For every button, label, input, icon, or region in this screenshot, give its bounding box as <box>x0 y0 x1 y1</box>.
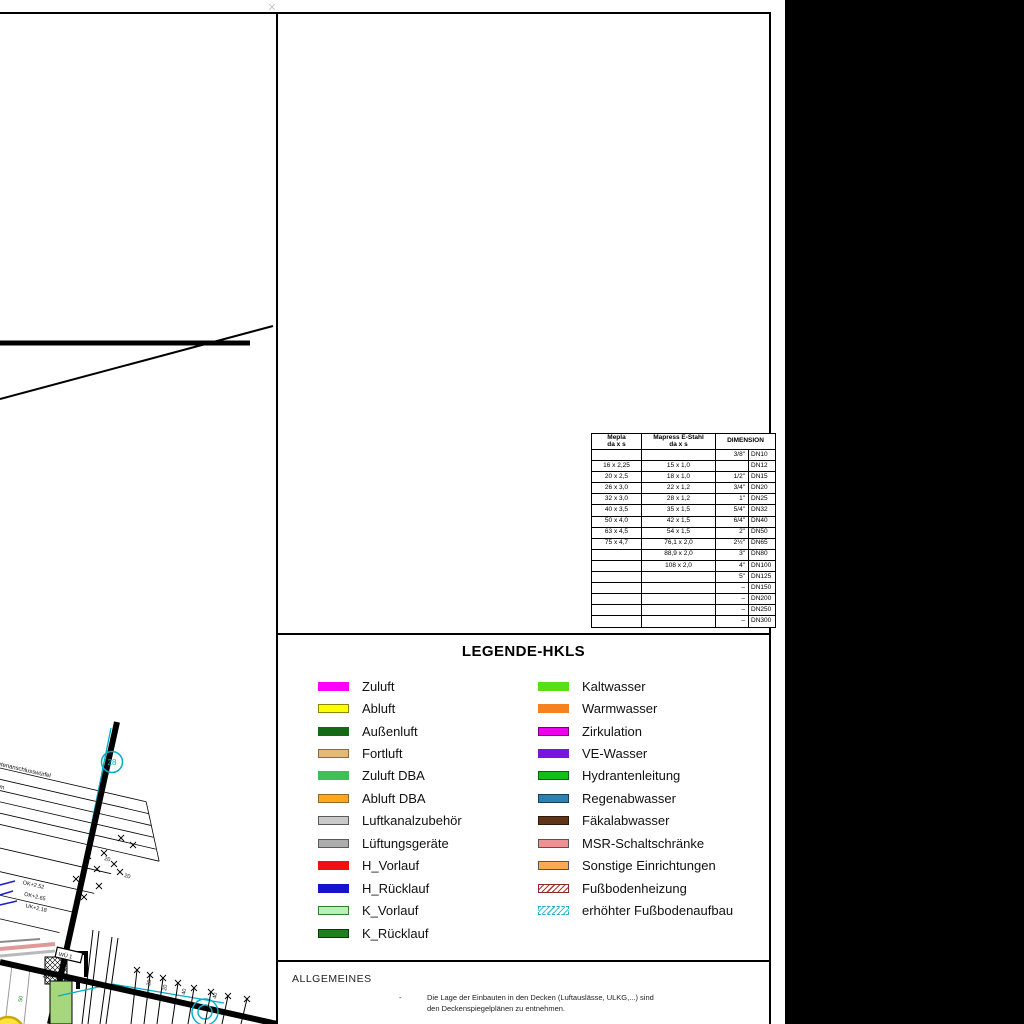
legend-panel-bottom-border <box>276 960 771 962</box>
pipe-table-header: Mepla da x s Mapress E-Stahl da x s DIME… <box>592 434 776 450</box>
cad-faint-tick <box>269 4 275 10</box>
cad-level-text: OK+2.52 <box>22 880 45 891</box>
legend-swatch <box>318 771 349 780</box>
legend-swatch <box>538 794 569 803</box>
legend-swatch <box>538 704 569 713</box>
table-cell: DN20 <box>749 483 776 494</box>
table-cell: DN50 <box>749 527 776 538</box>
legend-item: K_Vorlauf <box>318 899 462 921</box>
legend-swatch <box>538 816 569 825</box>
table-cell: – <box>716 594 749 605</box>
pipe-table-body: 3/8"DN1016 x 2,2515 x 1,0DN1220 x 2,518 … <box>592 450 776 628</box>
cad-msr-line <box>0 944 55 949</box>
legend-item: H_Vorlauf <box>318 855 462 877</box>
table-row: –DN150 <box>592 583 776 594</box>
cad-line <box>131 970 137 1024</box>
legend-column-right: KaltwasserWarmwasserZirkulationVE-Wasser… <box>538 675 733 922</box>
legend-label: MSR-Schaltschränke <box>582 836 704 851</box>
header-mapress-line2: da x s <box>669 441 687 448</box>
legend-swatch <box>318 839 349 848</box>
cad-dim-text: 40 <box>181 988 188 995</box>
legend-label: Zuluft <box>362 679 395 694</box>
table-cell: 54 x 1,5 <box>642 527 716 538</box>
table-cell: DN15 <box>749 472 776 483</box>
table-cell: DN300 <box>749 616 776 627</box>
table-cell <box>592 450 642 461</box>
table-row: 40 x 3,535 x 1,55/4"DN32 <box>592 505 776 516</box>
table-row: 20 x 2,518 x 1,01/2"DN15 <box>592 472 776 483</box>
table-cell: 3/4" <box>716 483 749 494</box>
legend-item: K_Rücklauf <box>318 922 462 944</box>
table-cell <box>642 572 716 583</box>
legend-label: K_Rücklauf <box>362 926 428 941</box>
legend-swatch <box>318 682 349 691</box>
table-cell: DN250 <box>749 605 776 616</box>
table-cell: 5/4" <box>716 505 749 516</box>
cad-section-marker-label: 28 <box>108 758 117 767</box>
legend-swatch <box>538 727 569 736</box>
legend-swatch <box>538 749 569 758</box>
cad-gray-walls <box>5 965 30 1024</box>
legend-item: Lüftungsgeräte <box>318 832 462 854</box>
table-cell: 2½" <box>716 538 749 549</box>
legend-item: VE-Wasser <box>538 742 733 764</box>
legend-swatch <box>318 749 349 758</box>
allgemeines-bullet: - <box>399 993 402 1002</box>
cad-green-shaft <box>50 981 72 1024</box>
table-cell: DN80 <box>749 549 776 560</box>
legend-swatch <box>538 861 569 870</box>
legend-swatch <box>318 704 349 713</box>
legend-swatch <box>318 727 349 736</box>
legend-swatch <box>318 794 349 803</box>
legend-item: Zuluft <box>318 675 462 697</box>
table-cell <box>642 594 716 605</box>
cad-diagonal-line <box>0 326 273 399</box>
legend-item: Luftkanalzubehör <box>318 810 462 832</box>
table-cell: 6/4" <box>716 516 749 527</box>
legend-swatch <box>318 929 349 938</box>
cad-annotation-text: B=1600 mm H=600 mm <box>0 771 5 791</box>
allgemeines-note-line: den Deckenspiegelplänen zu entnehmen. <box>427 1003 757 1014</box>
cad-blue-annotations <box>0 881 17 905</box>
table-cell: 4" <box>716 560 749 571</box>
legend-swatch <box>318 816 349 825</box>
pipe-dimension-table: Mepla da x s Mapress E-Stahl da x s DIME… <box>591 433 776 628</box>
legend-label: H_Vorlauf <box>362 858 419 873</box>
legend-panel-top-border <box>276 633 771 635</box>
table-row: 3/8"DN10 <box>592 450 776 461</box>
allgemeines-note-line: Die Lage der Einbauten in den Decken (Lu… <box>427 992 757 1003</box>
legend-label: Warmwasser <box>582 701 657 716</box>
table-row: 32 x 3,028 x 1,21"DN25 <box>592 494 776 505</box>
table-row: –DN200 <box>592 594 776 605</box>
table-row: 5"DN125 <box>592 572 776 583</box>
table-cell <box>716 461 749 472</box>
cad-level-text: UK+2.18 <box>25 903 47 914</box>
cad-dim-text: 20 <box>162 984 169 991</box>
cad-drawing: N-16+HYGIENE-Mietenanschlusswürfel Type … <box>0 0 277 1024</box>
legend-label: Abluft <box>362 701 395 716</box>
header-mepla: Mepla da x s <box>592 434 642 450</box>
legend-item: erhöhter Fußbodenaufbau <box>538 899 733 921</box>
legend-item: Zirkulation <box>538 720 733 742</box>
legend-label: Zuluft DBA <box>362 768 425 783</box>
cad-gray-line <box>0 951 55 956</box>
legend-column-left: ZuluftAbluftAußenluftFortluftZuluft DBAA… <box>318 675 462 944</box>
legend-label: Luftkanalzubehör <box>362 813 462 828</box>
legend-label: Fäkalabwasser <box>582 813 669 828</box>
table-cell: 42 x 1,5 <box>642 516 716 527</box>
table-cell: 18 x 1,0 <box>642 472 716 483</box>
table-row: 50 x 4,042 x 1,56/4"DN40 <box>592 516 776 527</box>
cad-thin-walls <box>82 930 118 1024</box>
sheet-black-margin <box>785 0 1024 1024</box>
legend-swatch <box>318 884 349 893</box>
table-row: –DN300 <box>592 616 776 627</box>
legend-swatch <box>538 884 569 893</box>
legend-label: Abluft DBA <box>362 791 426 806</box>
table-cell: 76,1 x 2,0 <box>642 538 716 549</box>
table-cell: 50 x 4,0 <box>592 516 642 527</box>
legend-item: Warmwasser <box>538 697 733 719</box>
cad-annotation-text: N-16+HYGIENE-Mietenanschlusswürfel <box>0 750 51 780</box>
table-row: 75 x 4,776,1 x 2,02½"DN65 <box>592 538 776 549</box>
cad-line <box>241 999 247 1024</box>
table-cell: 1" <box>716 494 749 505</box>
legend-swatch <box>538 906 569 915</box>
table-cell: DN40 <box>749 516 776 527</box>
table-cell <box>642 583 716 594</box>
table-cell: 35 x 1,5 <box>642 505 716 516</box>
legend-item: Fortluft <box>318 742 462 764</box>
table-cell: DN200 <box>749 594 776 605</box>
table-cell: 1/2" <box>716 472 749 483</box>
table-cell: 3" <box>716 549 749 560</box>
table-cell: 26 x 3,0 <box>592 483 642 494</box>
table-cell: DN150 <box>749 583 776 594</box>
legend-item: Außenluft <box>318 720 462 742</box>
header-dimension: DIMENSION <box>716 434 776 450</box>
table-row: 88,9 x 2,03"DN80 <box>592 549 776 560</box>
table-cell: 75 x 4,7 <box>592 538 642 549</box>
cad-gray-line <box>0 939 40 942</box>
legend-label: Hydrantenleitung <box>582 768 680 783</box>
cad-dim-text: 20 <box>124 873 131 880</box>
table-cell: DN65 <box>749 538 776 549</box>
legend-label: Sonstige Einrichtungen <box>582 858 716 873</box>
legend-label: Zirkulation <box>582 724 642 739</box>
table-row: –DN250 <box>592 605 776 616</box>
legend-label: Kaltwasser <box>582 679 646 694</box>
legend-item: Regenabwasser <box>538 787 733 809</box>
legend-swatch <box>318 906 349 915</box>
cad-yellow-symbol <box>0 1017 24 1024</box>
legend-item: Fäkalabwasser <box>538 810 733 832</box>
table-cell: 20 x 2,5 <box>592 472 642 483</box>
legend-label: Außenluft <box>362 724 418 739</box>
legend-swatch <box>318 861 349 870</box>
legend-swatch <box>538 839 569 848</box>
table-cell: – <box>716 616 749 627</box>
table-cell: – <box>716 583 749 594</box>
table-cell <box>642 616 716 627</box>
table-cell: DN100 <box>749 560 776 571</box>
table-cell: DN12 <box>749 461 776 472</box>
table-cell <box>592 560 642 571</box>
table-cell: DN25 <box>749 494 776 505</box>
legend-label: H_Rücklauf <box>362 881 429 896</box>
legend-item: Sonstige Einrichtungen <box>538 855 733 877</box>
table-cell <box>592 616 642 627</box>
cad-level-text: OK+2.65 <box>23 892 46 903</box>
table-row: 26 x 3,022 x 1,23/4"DN20 <box>592 483 776 494</box>
allgemeines-note: Die Lage der Einbauten in den Decken (Lu… <box>427 992 757 1014</box>
cad-dim-text: 40 <box>212 992 219 999</box>
legend-label: VE-Wasser <box>582 746 647 761</box>
table-cell <box>592 594 642 605</box>
table-cell <box>592 605 642 616</box>
legend-item: Abluft DBA <box>318 787 462 809</box>
table-cell: DN32 <box>749 505 776 516</box>
legend-label: K_Vorlauf <box>362 903 418 918</box>
table-cell: 28 x 1,2 <box>642 494 716 505</box>
header-mapress: Mapress E-Stahl da x s <box>642 434 716 450</box>
table-cell <box>592 583 642 594</box>
table-cell: 5" <box>716 572 749 583</box>
legend-label: erhöhter Fußbodenaufbau <box>582 903 733 918</box>
table-cell: 40 x 3,5 <box>592 505 642 516</box>
table-cell: 22 x 1,2 <box>642 483 716 494</box>
legend-item: Abluft <box>318 697 462 719</box>
legend-item: MSR-Schaltschränke <box>538 832 733 854</box>
table-row: 63 x 4,554 x 1,52"DN50 <box>592 527 776 538</box>
table-cell: DN10 <box>749 450 776 461</box>
legend-label: Fortluft <box>362 746 402 761</box>
legend-title: LEGENDE-HKLS <box>277 643 770 660</box>
table-row: 16 x 2,2515 x 1,0DN12 <box>592 461 776 472</box>
legend-swatch <box>538 682 569 691</box>
legend-item: Fußbodenheizung <box>538 877 733 899</box>
table-cell: 32 x 3,0 <box>592 494 642 505</box>
legend-label: Regenabwasser <box>582 791 676 806</box>
legend-item: H_Rücklauf <box>318 877 462 899</box>
table-cell <box>642 450 716 461</box>
table-cell: DN125 <box>749 572 776 583</box>
table-cell: 16 x 2,25 <box>592 461 642 472</box>
allgemeines-title: ALLGEMEINES <box>292 973 372 985</box>
table-row: 108 x 2,04"DN100 <box>592 560 776 571</box>
table-cell: 15 x 1,0 <box>642 461 716 472</box>
cad-dim-text-green: 50 <box>18 995 25 1002</box>
table-cell: 3/8" <box>716 450 749 461</box>
legend-label: Lüftungsgeräte <box>362 836 449 851</box>
legend-label: Fußbodenheizung <box>582 881 687 896</box>
table-cell: 2" <box>716 527 749 538</box>
legend-item: Hydrantenleitung <box>538 765 733 787</box>
cad-dim-text: 20 <box>104 856 111 863</box>
table-cell: 108 x 2,0 <box>642 560 716 571</box>
table-cell: – <box>716 605 749 616</box>
table-cell: 63 x 4,5 <box>592 527 642 538</box>
table-cell <box>592 572 642 583</box>
legend-item: Kaltwasser <box>538 675 733 697</box>
header-mepla-line2: da x s <box>607 441 625 448</box>
table-cell <box>642 605 716 616</box>
legend-swatch <box>538 771 569 780</box>
legend-item: Zuluft DBA <box>318 765 462 787</box>
table-cell: 88,9 x 2,0 <box>642 549 716 560</box>
table-cell <box>592 549 642 560</box>
